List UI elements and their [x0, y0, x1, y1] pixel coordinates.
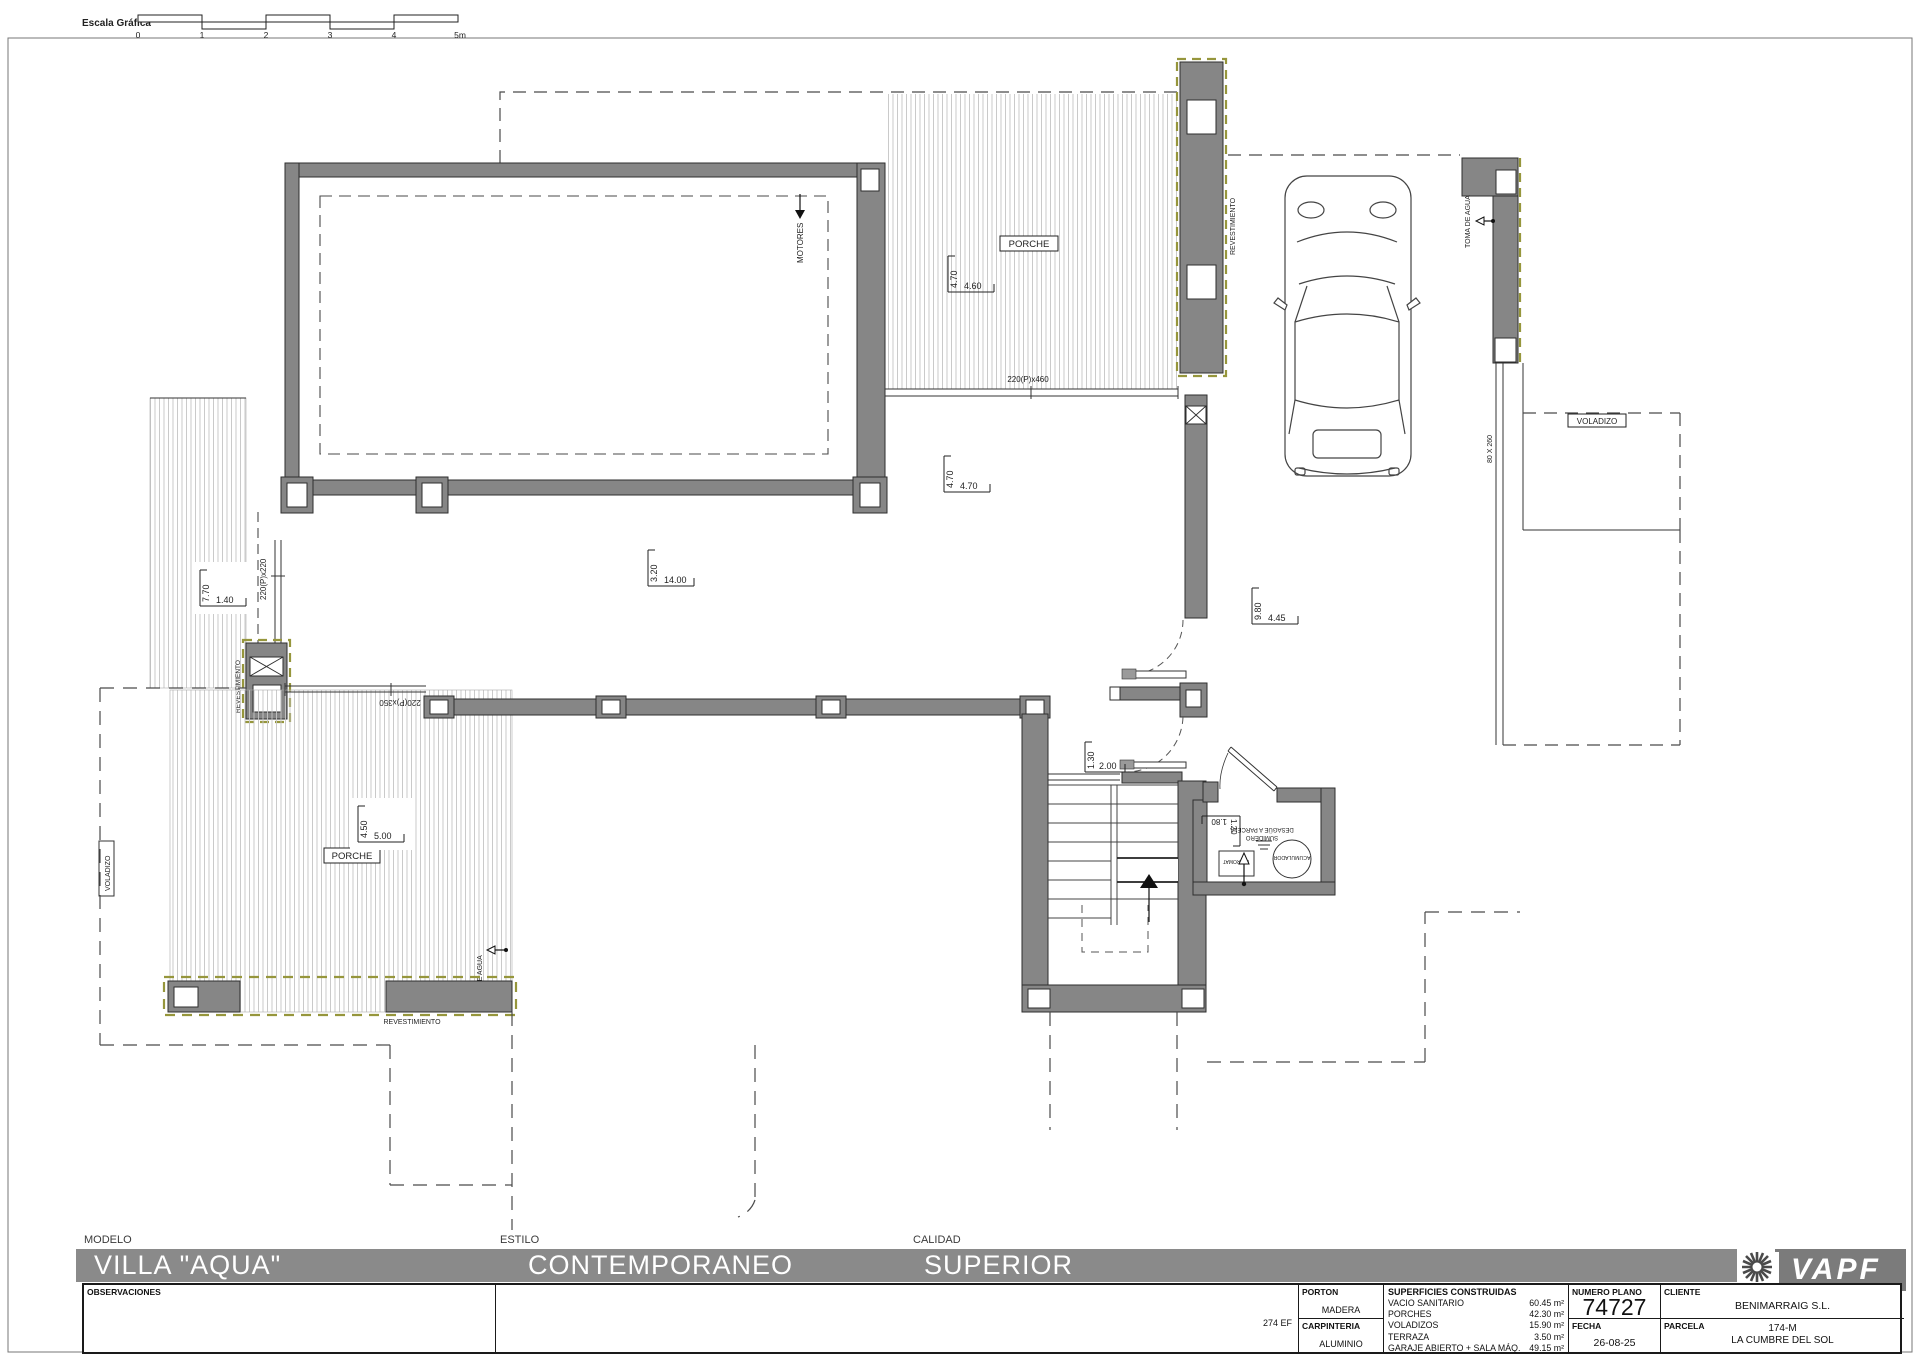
svg-text:3.20: 3.20	[649, 564, 659, 582]
left-terrace: 220(P)x220 REVESTIMIENTO	[150, 398, 290, 722]
scale-tick: 1	[200, 30, 205, 40]
title-bar: VILLA "AQUA" CONTEMPORANEO SUPERIOR	[76, 1249, 1737, 1282]
ref-code: 274 EF	[1263, 1318, 1292, 1328]
cliente-value: BENIMARRAIG S.L.	[1661, 1300, 1904, 1312]
entry-area	[1048, 395, 1207, 783]
svg-text:7.70: 7.70	[201, 584, 211, 602]
fecha-label: FECHA	[1572, 1321, 1601, 1331]
dimension-pool-terrace: 3.20 14.00	[648, 550, 694, 586]
superficies-row: VACIO SANITARIO 60.45 m²	[1388, 1298, 1564, 1309]
scale-tick: 2	[264, 30, 269, 40]
garage: TOMA DE AGUA 80 X 260 VOLADIZO	[1462, 158, 1680, 745]
revestimiento-label-bottom: REVESTIMIENTO	[383, 1019, 441, 1026]
modelo-label: MODELO	[84, 1234, 132, 1246]
observaciones-cell: OBSERVACIONES	[84, 1285, 496, 1352]
dimension-hall: 1.30 2.00	[1085, 742, 1125, 772]
calidad-label: CALIDAD	[913, 1234, 961, 1246]
floor-plan-canvas: Escala Gráfica 0 1 2 3 4 5m	[0, 0, 1920, 1357]
porton-value: MADERA	[1299, 1305, 1383, 1315]
superficies-cell: SUPERFICIES CONSTRUIDAS VACIO SANITARIO …	[1384, 1285, 1569, 1352]
quality-name: SUPERIOR	[924, 1250, 1073, 1281]
title-block-table: OBSERVACIONES 274 EF PORTON MADERA CARPI…	[82, 1283, 1902, 1354]
dimension-terrace-mid: 4.70 4.70	[944, 456, 990, 492]
revestimiento-label-right: REVESTIMIENTO	[1230, 197, 1237, 255]
porche-label-top: PORCHE	[1009, 239, 1050, 250]
pool-basin-dashed	[320, 196, 828, 454]
lower-porch: PORCHE TOMA DE AGUA REVESTIMIENTO VOLADI…	[99, 690, 516, 1026]
scale-tick: 4	[392, 30, 397, 40]
fecha-value: 26-08-25	[1569, 1337, 1660, 1349]
svg-text:9.80: 9.80	[1253, 602, 1263, 620]
svg-text:SUMIDERO: SUMIDERO	[1246, 834, 1279, 840]
svg-text:1.40: 1.40	[216, 595, 234, 605]
dimension-left-terrace: 7.70 1.40	[192, 562, 254, 614]
pool-pillars	[287, 169, 880, 507]
porche-label-lower: PORCHE	[332, 851, 373, 862]
scale-tick: 5m	[454, 30, 466, 40]
voladizo-dashed-right	[1503, 413, 1680, 745]
dimension-porch-left: 4.50 5.00	[350, 798, 412, 850]
window-size-label: 220(P)x350	[379, 698, 421, 707]
svg-text:4.70: 4.70	[949, 270, 959, 288]
svg-text:5.00: 5.00	[374, 831, 392, 841]
svg-text:1.80: 1.80	[1211, 817, 1227, 826]
top-porch: 220(P)x460 PORCHE REVESTIMIENTO	[885, 59, 1237, 399]
pool: MOTORES	[281, 163, 887, 513]
svg-text:2.00: 2.00	[1099, 761, 1117, 771]
svg-text:TOMA DE AGUA: TOMA DE AGUA	[1465, 195, 1472, 248]
machine-room-door	[1220, 747, 1277, 791]
cliente-label: CLIENTE	[1664, 1287, 1700, 1297]
toma-de-agua-garage: TOMA DE AGUA	[1465, 195, 1495, 248]
drain-symbol	[1256, 841, 1272, 849]
style-name: CONTEMPORANEO	[528, 1250, 793, 1281]
vapf-wordmark: VAPF	[1791, 1253, 1881, 1287]
window-size-label: 220(P)x220	[259, 558, 268, 600]
svg-text:4.50: 4.50	[359, 820, 369, 838]
superficies-label: SUPERFICIES CONSTRUIDAS	[1388, 1287, 1564, 1298]
car-icon	[1274, 176, 1420, 476]
svg-text:4.70: 4.70	[960, 481, 978, 491]
stair-treads	[1048, 785, 1178, 925]
superficies-row: TERRAZA 3.50 m²	[1388, 1332, 1564, 1343]
svg-text:4.70: 4.70	[945, 470, 955, 488]
scale-tick: 3	[328, 30, 333, 40]
scale-bar: Escala Gráfica 0 1 2 3 4 5m	[82, 15, 466, 40]
carpinteria-label: CARPINTERIA	[1302, 1321, 1360, 1331]
svg-text:1.30: 1.30	[1086, 751, 1096, 769]
client-cell: CLIENTE BENIMARRAIG S.L. PARCELA 174-M L…	[1661, 1285, 1904, 1352]
svg-text:4.45: 4.45	[1268, 613, 1286, 623]
acumulador-label: ACUMULADOR	[1273, 854, 1310, 860]
plan-number-cell: NUMERO PLANO 74727 FECHA 26-08-25	[1569, 1285, 1661, 1352]
model-name: VILLA "AQUA"	[94, 1250, 281, 1281]
voladizo-label-right: VOLADIZO	[1577, 417, 1617, 426]
dimension-entry: 9.80 4.45	[1252, 588, 1298, 624]
window-size-label: 80 X 260	[1487, 435, 1494, 463]
stair-top-window	[1048, 774, 1120, 780]
scale-tick: 0	[136, 30, 141, 40]
parcela-value: 174-M LA CUMBRE DEL SOL	[1661, 1323, 1904, 1347]
svg-text:4.60: 4.60	[964, 281, 982, 291]
drawing-sheet: Escala Gráfica 0 1 2 3 4 5m	[0, 0, 1920, 1357]
dimension-machine-room: 1.20 1.80	[1202, 816, 1240, 846]
superficies-row: GARAJE ABIERTO + SALA MÁQ. 49.15 m²	[1388, 1343, 1564, 1354]
staircase	[1022, 714, 1206, 1012]
voladizo-label-left: VOLADIZO	[105, 855, 112, 891]
superficies-row: PORCHES 42.30 m²	[1388, 1309, 1564, 1320]
porton-label: PORTON	[1302, 1287, 1338, 1297]
reference-cell: 274 EF	[496, 1285, 1299, 1352]
carpinteria-value: ALUMINIO	[1299, 1339, 1383, 1349]
superficies-row: VOLADIZOS 15.90 m²	[1388, 1320, 1564, 1331]
motores-label: MOTORES	[796, 223, 805, 263]
svg-text:14.00: 14.00	[664, 575, 687, 585]
window-size-label: 220(P)x460	[1007, 375, 1049, 384]
estilo-label: ESTILO	[500, 1234, 539, 1246]
numero-plano-value: 74727	[1569, 1294, 1660, 1321]
observaciones-label: OBSERVACIONES	[87, 1287, 161, 1297]
garage-glass-wall	[1496, 363, 1503, 745]
pool-motors-callout: MOTORES	[795, 194, 805, 263]
left-window	[271, 540, 285, 643]
svg-text:1.20: 1.20	[1229, 819, 1238, 835]
materials-cell: PORTON MADERA CARPINTERIA ALUMINIO	[1299, 1285, 1384, 1352]
